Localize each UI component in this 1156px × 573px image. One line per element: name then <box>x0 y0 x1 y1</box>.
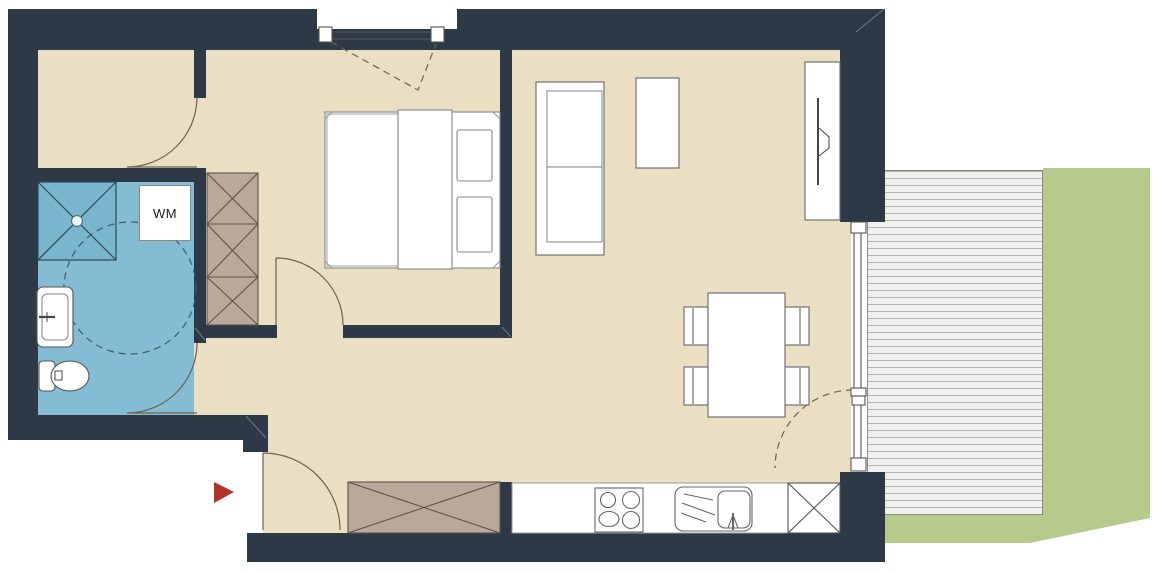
washing-machine: WM <box>139 185 191 241</box>
entry-wardrobe <box>348 482 500 533</box>
dining-table <box>708 293 785 417</box>
bathroom-door <box>127 343 197 413</box>
washbasin <box>37 287 73 347</box>
dining-set <box>684 293 809 417</box>
dining-chair <box>684 307 708 345</box>
floor-plan: WM <box>0 0 1156 573</box>
storage-door <box>127 97 197 167</box>
shower <box>38 182 116 260</box>
dining-chair <box>785 367 809 405</box>
tv-board <box>805 62 840 220</box>
sofa <box>536 82 604 255</box>
kitchen-tall-cabinet <box>788 483 840 533</box>
kitchen-sink <box>675 487 752 531</box>
side-table <box>636 78 679 168</box>
bed <box>325 110 500 269</box>
plan-linework <box>0 0 1156 573</box>
pillow <box>457 130 492 181</box>
entrance-arrow-icon <box>214 482 234 503</box>
stove <box>595 488 643 532</box>
hall-wardrobe <box>207 173 258 325</box>
window-opening-dashes <box>331 42 436 90</box>
dining-chair <box>684 367 708 405</box>
pillow <box>457 197 492 252</box>
entrance-door <box>263 453 340 530</box>
washing-machine-label: WM <box>153 206 177 221</box>
terrace-window <box>851 222 866 471</box>
bedroom-window <box>319 27 444 42</box>
toilet <box>39 361 89 391</box>
dining-chair <box>785 307 809 345</box>
